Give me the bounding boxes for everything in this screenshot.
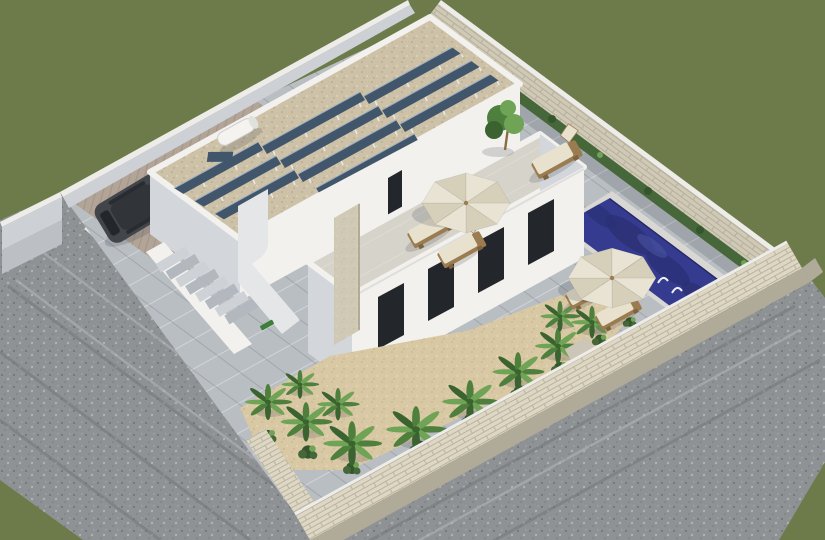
render-stage bbox=[0, 0, 825, 540]
architectural-render bbox=[0, 0, 825, 540]
stone-column bbox=[334, 203, 360, 345]
